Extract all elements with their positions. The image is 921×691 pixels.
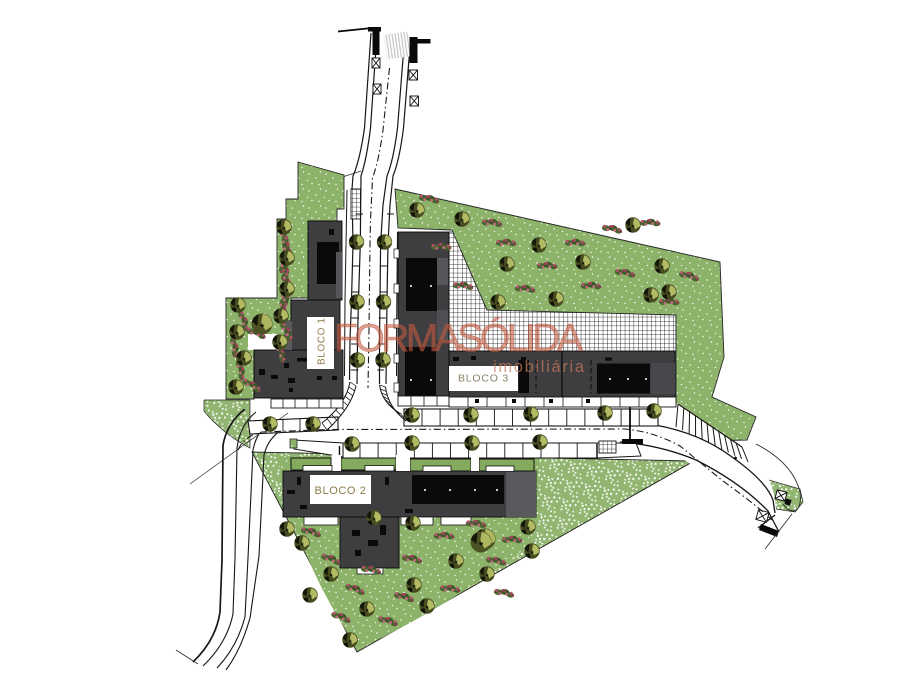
svg-text:BLOCO 2: BLOCO 2 <box>315 485 367 497</box>
svg-text:FORMASÓLIDA: FORMASÓLIDA <box>334 317 585 360</box>
svg-text:imobiliária: imobiliária <box>493 358 585 376</box>
svg-text:BLOCO 1: BLOCO 1 <box>317 317 328 365</box>
